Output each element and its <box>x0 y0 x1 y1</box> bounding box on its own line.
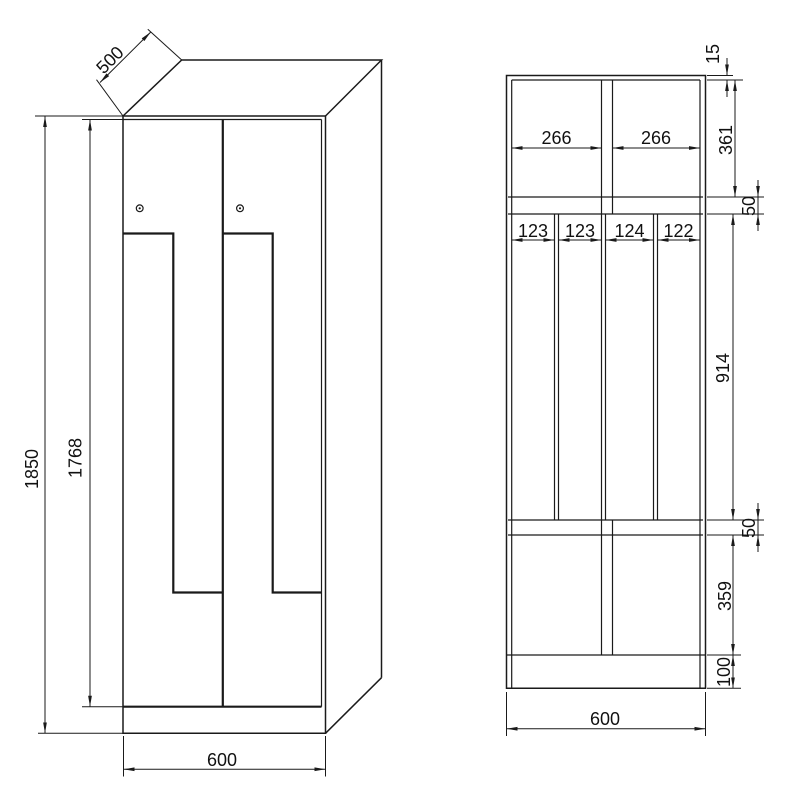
dim-label-depth: 500 <box>92 42 127 77</box>
perspective-view: 500 1850 1768 600 <box>22 29 382 776</box>
dim-plinth-100: 100 <box>707 655 741 688</box>
dim-label-width-front: 600 <box>207 750 237 770</box>
dim-label-height: 1850 <box>22 449 42 489</box>
dim-label-top-compartment: 361 <box>716 125 736 155</box>
dim-lower-shelf-50: 50 <box>707 503 764 552</box>
dim-upper-right-266: 266 <box>613 128 701 148</box>
dim-slot-3: 124 <box>606 221 654 241</box>
section-view: 15 361 50 914 50 <box>507 44 765 736</box>
dim-upper-left-266: 266 <box>512 128 602 148</box>
lock-left <box>136 205 143 212</box>
dim-label-slot-4: 122 <box>663 221 693 241</box>
dim-height-1850: 1850 <box>22 116 123 733</box>
dim-slot-2: 123 <box>559 221 602 241</box>
dim-top-panel-15: 15 <box>703 44 743 97</box>
technical-drawing-page: 500 1850 1768 600 <box>0 0 800 800</box>
dim-width-600-section: 600 <box>507 692 706 736</box>
locker-technical-drawing: 500 1850 1768 600 <box>0 0 800 800</box>
dim-label-bottom-compartment: 359 <box>715 581 735 611</box>
dim-top-compartment-361: 361 <box>716 80 736 197</box>
dim-bottom-compartment-359: 359 <box>707 535 741 655</box>
dim-label-middle-compartment: 914 <box>713 353 733 383</box>
dim-label-slot-2: 123 <box>565 221 595 241</box>
dim-label-upper-shelf: 50 <box>739 196 759 216</box>
lock-right <box>237 205 244 212</box>
dim-label-width-section: 600 <box>590 709 620 729</box>
dim-label-upper-right: 266 <box>641 128 671 148</box>
dim-slot-1: 123 <box>512 221 555 241</box>
section-structure <box>507 76 706 689</box>
dim-label-slot-1: 123 <box>518 221 548 241</box>
dim-label-door-height: 1768 <box>66 438 86 478</box>
dim-label-lower-shelf: 50 <box>739 518 759 538</box>
dim-door-height-1768: 1768 <box>66 120 124 707</box>
dim-label-top-panel: 15 <box>703 44 723 64</box>
dim-label-slot-3: 124 <box>614 221 644 241</box>
dim-width-600-front: 600 <box>124 736 326 777</box>
cabinet-outline <box>123 60 382 733</box>
dim-middle-compartment-914: 914 <box>713 214 733 520</box>
z-doors <box>123 120 322 707</box>
dim-label-upper-left: 266 <box>541 128 571 148</box>
dim-label-plinth: 100 <box>714 657 734 687</box>
dim-slot-4: 122 <box>658 221 701 241</box>
